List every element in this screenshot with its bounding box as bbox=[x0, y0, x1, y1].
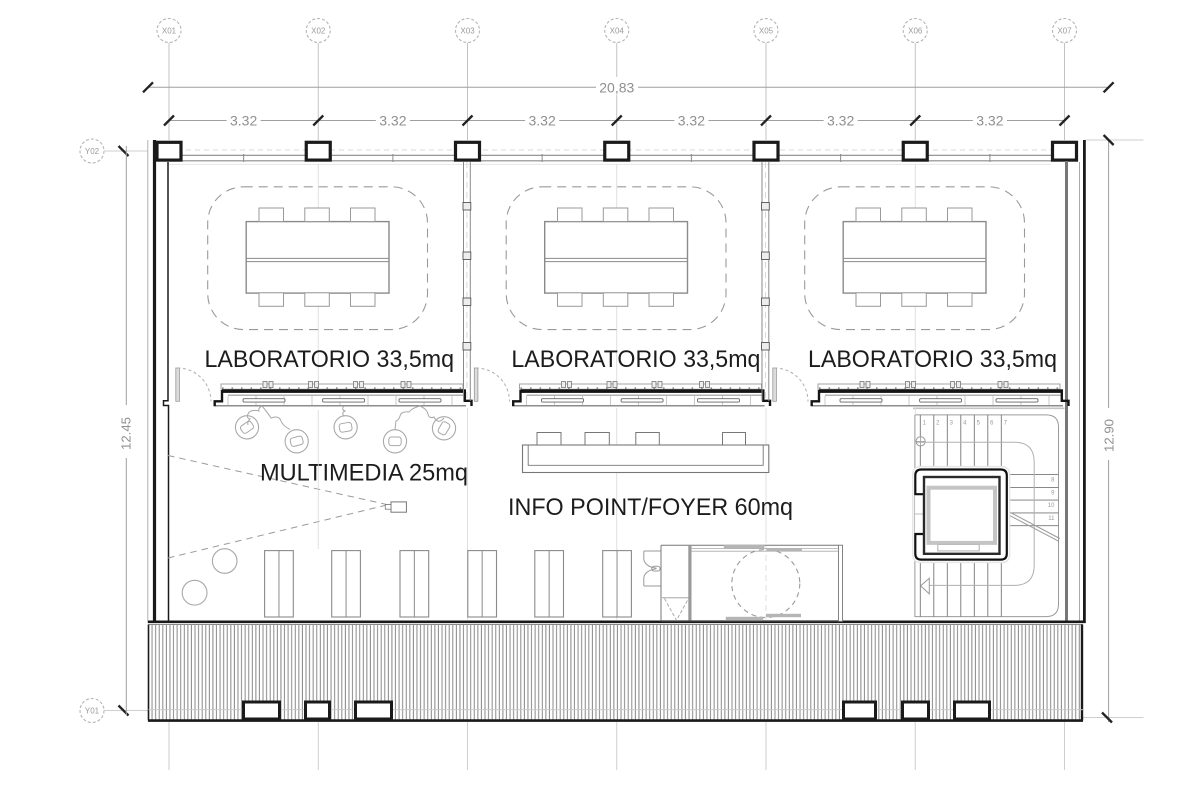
svg-text:3.32: 3.32 bbox=[379, 113, 406, 129]
svg-text:3.32: 3.32 bbox=[678, 113, 705, 129]
svg-text:LABORATORIO 33,5mq: LABORATORIO 33,5mq bbox=[205, 346, 455, 373]
svg-text:3.32: 3.32 bbox=[230, 113, 257, 129]
svg-text:X07: X07 bbox=[1057, 27, 1072, 36]
svg-text:3.32: 3.32 bbox=[827, 113, 854, 129]
svg-text:20,83: 20,83 bbox=[599, 80, 634, 96]
svg-text:X05: X05 bbox=[759, 27, 774, 36]
svg-text:11: 11 bbox=[1048, 516, 1055, 522]
svg-text:X04: X04 bbox=[610, 27, 625, 36]
svg-text:LABORATORIO 33,5mq: LABORATORIO 33,5mq bbox=[511, 346, 760, 373]
svg-text:X06: X06 bbox=[908, 27, 923, 36]
svg-text:Y01: Y01 bbox=[85, 707, 100, 716]
svg-text:3.32: 3.32 bbox=[529, 113, 556, 129]
svg-text:12.45: 12.45 bbox=[119, 417, 134, 450]
svg-text:X03: X03 bbox=[460, 27, 475, 36]
svg-text:10: 10 bbox=[1048, 503, 1055, 509]
svg-text:X01: X01 bbox=[162, 27, 177, 36]
svg-text:3.32: 3.32 bbox=[976, 113, 1003, 129]
svg-text:LABORATORIO 33,5mq: LABORATORIO 33,5mq bbox=[808, 346, 1057, 373]
svg-text:X02: X02 bbox=[311, 27, 326, 36]
svg-text:12.90: 12.90 bbox=[1102, 419, 1117, 452]
svg-text:MULTIMEDIA 25mq: MULTIMEDIA 25mq bbox=[260, 460, 468, 487]
svg-text:Y02: Y02 bbox=[85, 147, 100, 156]
svg-text:INFO POINT/FOYER 60mq: INFO POINT/FOYER 60mq bbox=[508, 494, 793, 521]
